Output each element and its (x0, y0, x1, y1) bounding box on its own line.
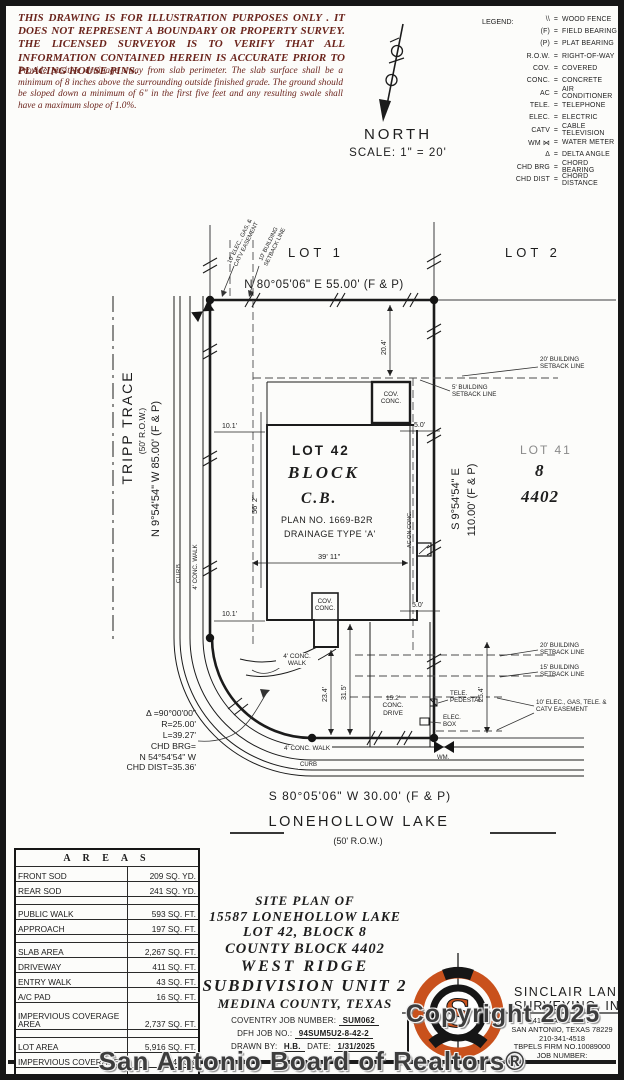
legend-item: R.O.W.=RIGHT-OF-WAY (498, 50, 620, 62)
legend-item: CATV=CABLE TELEVISION (498, 124, 620, 136)
watermark-sabor: San Antonio Board of Realtors® (8, 1046, 616, 1077)
title-line: LOT 42, BLOCK 8 (198, 925, 412, 941)
lot41-label: LOT 41 (520, 444, 572, 458)
table-row: FRONT SOD209 SQ. YD. (16, 866, 198, 881)
easement-bottom-label: 10' ELEC., GAS, TELE. & CATV EASEMENT (536, 699, 618, 713)
dim-20-4: 20.4' (381, 340, 389, 355)
disclaimer-note: Provide positive drainage away from slab… (18, 66, 343, 112)
legend-item: Δ=DELTA ANGLE (498, 149, 620, 161)
plan-no-label: PLAN NO. 1669-B2R (281, 515, 373, 525)
title-line: 15587 LONEHOLLOW LAKE (198, 909, 412, 925)
dim-39-11: 39' 11" (316, 553, 342, 562)
tele-pedestal-label: TELE. PEDESTAL (450, 690, 496, 704)
areas-title: A R E A S (16, 850, 198, 866)
water-meter-icon (434, 741, 454, 753)
dim-5-0-bottom: 5.0' (412, 602, 423, 610)
table-row: REAR SOD241 SQ. YD. (16, 881, 198, 896)
curve-data-block: Δ =90°00'00" R=25.00' L=39.27' CHD BRG= … (98, 708, 196, 773)
table-row: APPROACH197 SQ. FT. (16, 919, 198, 934)
legend: \\=WOOD FENCE (F)=FIELD BEARING (P)=PLAT… (498, 13, 620, 186)
lot41-block-label: 8 (535, 461, 544, 481)
legend-item: COV.=COVERED (498, 62, 620, 74)
scale-label: SCALE: 1" = 20' (330, 147, 466, 160)
bearing-north: N 80°05'06" E 55.00' (F & P) (206, 279, 442, 292)
title-line: MEDINA COUNTY, TEXAS (198, 996, 412, 1012)
cb-label: C.B. (301, 490, 337, 508)
walk-south-label: 4' CONC. WALK (282, 745, 332, 752)
setback15-label: 15' BUILDING SETBACK LINE (540, 664, 604, 678)
legend-item: WM ⋈=WATER METER (498, 136, 620, 148)
legend-item: CHD DIST=CHORD DISTANCE (498, 173, 620, 185)
lot41-cb-label: 4402 (521, 487, 559, 507)
curb-west-label: CURB (176, 563, 183, 583)
block-label: BLOCK (288, 463, 360, 483)
title-line: SUBDIVISION UNIT 2 (198, 976, 412, 996)
legend-item: \\=WOOD FENCE (498, 13, 620, 25)
title-line: WEST RIDGE (198, 958, 412, 976)
bearing-west: N 9°54'54" W 85.00' (F & P) (150, 358, 163, 580)
street-lonehollow-row: (50' R.O.W.) (258, 836, 458, 846)
street-lonehollow: LONEHOLLOW LAKE (233, 814, 485, 831)
legend-item: CHD BRG=CHORD BEARING (498, 161, 620, 173)
walk-mid-label: 4' CONC. WALK (276, 653, 318, 668)
dim-56-2: 56' 2" (251, 495, 260, 514)
legend-item: AC=AIR CONDITIONER (498, 87, 620, 99)
curb-south-label: CURB (298, 762, 319, 769)
table-row-blank (16, 934, 198, 942)
setback5-label: 5' BUILDING SETBACK LINE (452, 384, 508, 398)
dfh-job-row: DFH JOB NO.: 94SUM5U2-8-42-2 (198, 1029, 412, 1038)
legend-item: ELEC.=ELECTRIC (498, 112, 620, 124)
legend-item: (F)=FIELD BEARING (498, 25, 620, 37)
lot42-label: LOT 42 (292, 443, 350, 459)
coventry-job-value: SUM062 (339, 1016, 379, 1026)
dim-10-1-bottom: 10.1' (222, 611, 237, 619)
ac-on-conc-label: AC ON CONC. (407, 511, 413, 548)
setback20-bottom-label: 20' BUILDING SETBACK LINE (540, 642, 604, 656)
dim-5-0-top: 5.0' (414, 422, 425, 430)
legend-item: (P)=PLAT BEARING (498, 38, 620, 50)
dfh-job-value: 94SUM5U2-8-42-2 (295, 1029, 373, 1039)
watermark-copyright: Copyright 2025 (386, 1000, 620, 1029)
surveyor-name-1: SINCLAIR LAND (514, 985, 624, 999)
table-row: ENTRY WALK43 SQ. FT. (16, 972, 198, 987)
utility-symbols (191, 301, 454, 753)
table-row: SLAB AREA2,267 SQ. FT. (16, 942, 198, 957)
title-line: SITE PLAN OF (198, 893, 412, 909)
table-row: PUBLIC WALK593 SQ. FT. (16, 904, 198, 919)
setback20-top-label: 20' BUILDING SETBACK LINE (540, 356, 604, 370)
legend-item: TELE.=TELEPHONE (498, 99, 620, 111)
elec-box-label: ELEC. BOX (443, 714, 473, 728)
table-row-blank (16, 1029, 198, 1037)
bearing-east-1: S 9°54'54" E (450, 436, 463, 562)
wm-label: WM. (437, 755, 449, 762)
street-tripp-row: (50' R.O.W.) (138, 385, 148, 477)
elec-box-icon (420, 718, 429, 725)
table-row: A/C PAD16 SQ. FT. (16, 987, 198, 1002)
table-row: IMPERVIOUS COVERAGE AREA2,737 SQ. FT. (16, 1002, 198, 1029)
drainage-label: DRAINAGE TYPE 'A' (284, 529, 376, 539)
site-plan-page: S THIS DRAWING IS FOR ILLUSTRATION PURPO… (0, 0, 624, 1080)
lot1-label: LOT 1 (288, 246, 344, 261)
coventry-job-row: COVENTRY JOB NUMBER: SUM062 (198, 1016, 412, 1025)
legend-item: CONC.=CONCRETE (498, 75, 620, 87)
title-block: SITE PLAN OF 15587 LONEHOLLOW LAKE LOT 4… (198, 893, 412, 1051)
cov-conc-bottom-label: COV. CONC. (314, 598, 336, 612)
cov-conc-top-label: COV. CONC. (376, 391, 406, 405)
title-line: COUNTY BLOCK 4402 (198, 941, 412, 958)
dim-10-1-top: 10.1' (222, 423, 237, 431)
conc-drive-label: 15.2' CONC. DRIVE (377, 695, 409, 717)
table-row: DRIVEWAY411 SQ. FT. (16, 957, 198, 972)
walk-west-label: 4' CONC. WALK (192, 526, 199, 608)
north-label: NORTH (352, 126, 444, 143)
bearing-east-2: 110.00' (F & P) (466, 434, 479, 566)
dim-31-5: 31.5' (341, 685, 349, 700)
bearing-south: S 80°05'06" W 30.00' (F & P) (234, 790, 486, 804)
north-arrow-icon (379, 24, 404, 122)
street-tripp-trace: TRIPP TRACE (119, 360, 135, 495)
dim-23-4: 23.4' (322, 687, 330, 702)
table-row-blank (16, 896, 198, 904)
lot2-label: LOT 2 (505, 246, 561, 261)
